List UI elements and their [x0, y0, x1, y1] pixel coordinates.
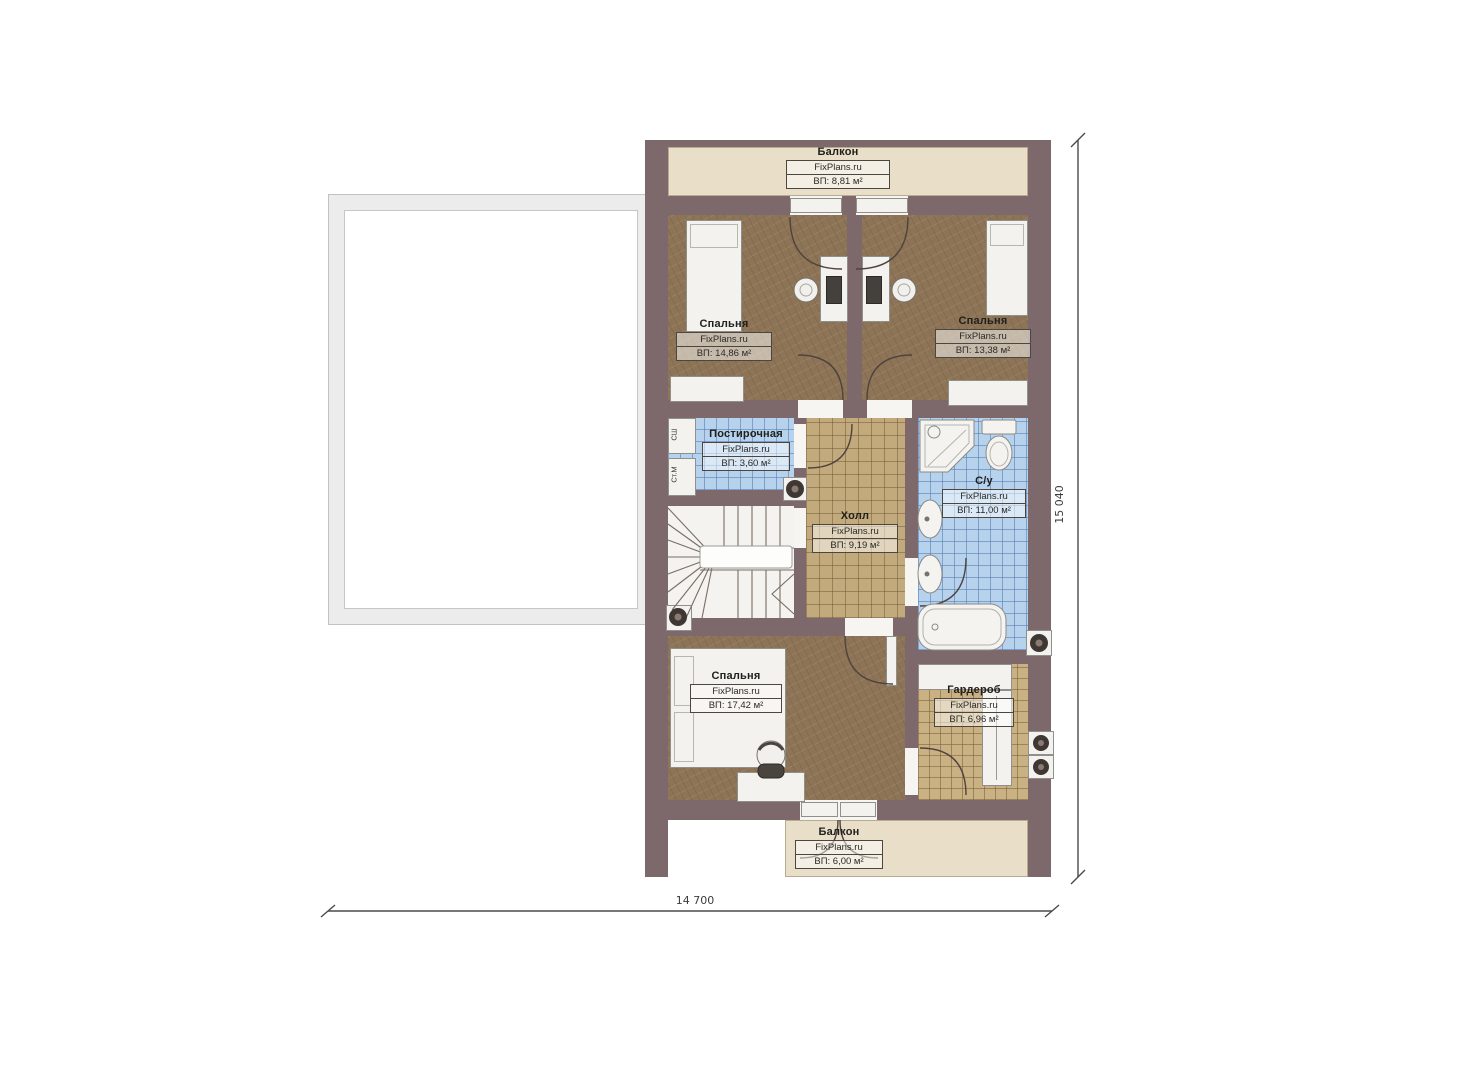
room-name: Постирочная — [702, 428, 790, 440]
column-box-stairs — [666, 605, 692, 631]
room-brand: FixPlans.ru — [935, 699, 1013, 713]
door-leaf-balcony-left — [790, 198, 842, 213]
keyboard-right — [866, 276, 882, 304]
room-label-bedroom-bottom: Спальня FixPlans.ru ВП: 17,42 м² — [690, 670, 782, 713]
pillow-right — [990, 224, 1024, 246]
room-brand: FixPlans.ru — [677, 333, 771, 347]
door-opening-bedroom-right — [867, 400, 912, 418]
wall-bathroom-bottom — [905, 650, 1028, 664]
stair-landing-opening — [794, 508, 806, 548]
keyboard-left — [826, 276, 842, 304]
room-label-balcony-top: Балкон FixPlans.ru ВП: 8,81 м² — [786, 146, 890, 189]
room-brand: FixPlans.ru — [796, 841, 882, 855]
room-brand: FixPlans.ru — [936, 330, 1030, 344]
room-area: ВП: 14,86 м² — [677, 347, 771, 360]
room-area: ВП: 8,81 м² — [787, 175, 889, 188]
wall-bedroom-divider — [847, 215, 862, 400]
door-opening-bathroom — [905, 558, 918, 606]
room-brand: FixPlans.ru — [703, 443, 789, 457]
dimension-horizontal: 14 700 — [660, 894, 730, 907]
door-opening-wardrobe — [905, 748, 918, 795]
bathroom-floor — [918, 418, 1028, 650]
door-leaf-balcony-bottom-left — [801, 802, 838, 817]
wall-left — [645, 140, 668, 877]
room-name: Спальня — [690, 670, 782, 682]
dresser-left — [670, 376, 744, 402]
room-label-bedroom-top-right: Спальня FixPlans.ru ВП: 13,38 м² — [935, 315, 1031, 358]
floorplan-canvas: СШ Ст.М — [0, 0, 1474, 1080]
room-name: Балкон — [795, 826, 883, 838]
door-opening-bedroom-left — [798, 400, 843, 418]
room-label-hall: Холл FixPlans.ru ВП: 9,19 м² — [812, 510, 898, 553]
room-area: ВП: 6,00 м² — [796, 855, 882, 868]
room-brand: FixPlans.ru — [787, 161, 889, 175]
wall-top — [668, 196, 1028, 215]
room-label-bathroom: С/у FixPlans.ru ВП: 11,00 м² — [942, 475, 1026, 518]
room-name: С/у — [942, 475, 1026, 487]
room-area: ВП: 6,96 м² — [935, 713, 1013, 726]
room-brand: FixPlans.ru — [691, 685, 781, 699]
room-brand: FixPlans.ru — [943, 490, 1025, 504]
room-label-balcony-bottom: Балкон FixPlans.ru ВП: 6,00 м² — [795, 826, 883, 869]
washer-label: Ст.М — [670, 466, 679, 482]
room-area: ВП: 3,60 м² — [703, 457, 789, 470]
room-name: Холл — [812, 510, 898, 522]
room-name: Гардероб — [934, 684, 1014, 696]
vent-box-wardrobe-1 — [1028, 731, 1054, 755]
room-name: Спальня — [935, 315, 1031, 327]
vent-box-bathroom — [1026, 630, 1052, 656]
room-label-wardrobe: Гардероб FixPlans.ru ВП: 6,96 м² — [934, 684, 1014, 727]
door-leaf-balcony-right — [856, 198, 908, 213]
terrace-inner — [344, 210, 638, 609]
terrace-outline — [328, 194, 654, 625]
room-label-laundry: Постирочная FixPlans.ru ВП: 3,60 м² — [702, 428, 790, 471]
dresser-right — [948, 380, 1028, 406]
pillow-left — [690, 224, 738, 248]
dryer-label: СШ — [670, 428, 679, 440]
room-area: ВП: 17,42 м² — [691, 699, 781, 712]
dimension-vertical: 15 040 — [1053, 485, 1066, 524]
staircase-floor — [668, 506, 794, 618]
desk-bottom — [737, 772, 805, 802]
room-area: ВП: 13,38 м² — [936, 344, 1030, 357]
room-name: Балкон — [786, 146, 890, 158]
room-brand: FixPlans.ru — [813, 525, 897, 539]
pillow-bottom-2 — [674, 712, 694, 762]
door-opening-bedroom-bottom — [845, 618, 893, 636]
door-opening-laundry — [794, 424, 806, 468]
room-area: ВП: 11,00 м² — [943, 504, 1025, 517]
room-label-bedroom-top-left: Спальня FixPlans.ru ВП: 14,86 м² — [676, 318, 772, 361]
vent-box-wardrobe-2 — [1028, 755, 1054, 779]
laundry-sink-counter — [783, 477, 807, 501]
door-leaf-bedroom-bottom — [886, 636, 897, 686]
door-leaf-balcony-bottom-right — [840, 802, 876, 817]
room-area: ВП: 9,19 м² — [813, 539, 897, 552]
room-name: Спальня — [676, 318, 772, 330]
